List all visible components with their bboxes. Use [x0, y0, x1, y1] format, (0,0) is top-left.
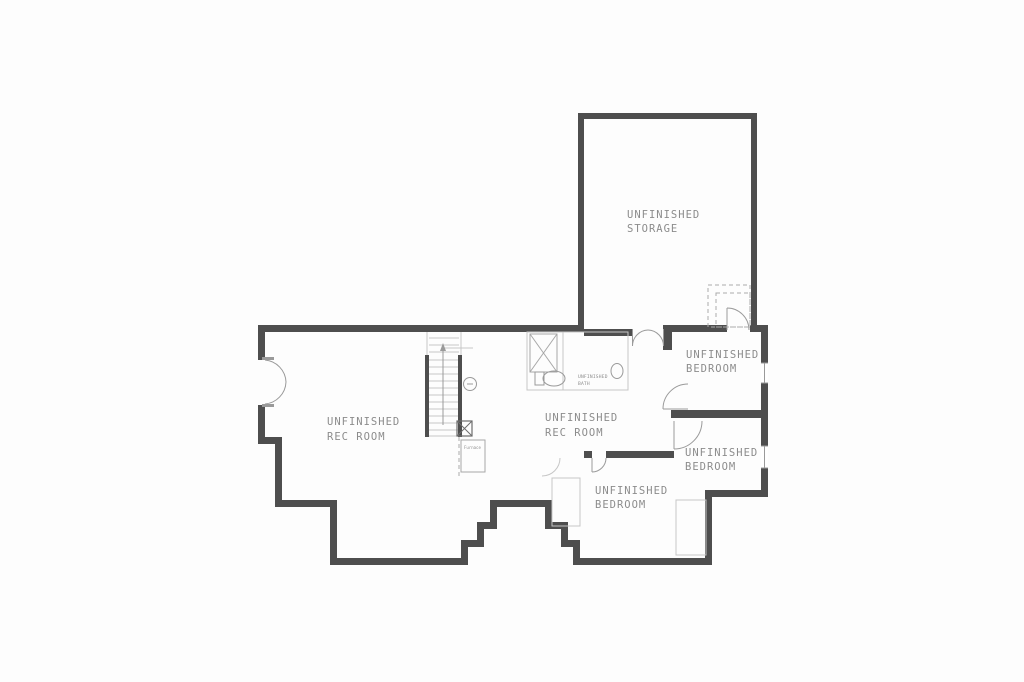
label-bath: UNFINISHED BATH [578, 374, 608, 387]
storage-top-wall [578, 113, 757, 119]
bedroom3-top-wall-stub [584, 451, 592, 458]
sink [611, 364, 623, 379]
storage-left-wall [578, 113, 584, 332]
svg-text:UNFINISHED: UNFINISHED [686, 349, 759, 361]
exterior-walls [258, 113, 768, 565]
shower [530, 334, 557, 372]
bedroom3-bottom-wall [573, 558, 712, 565]
svg-text:BEDROOM: BEDROOM [595, 499, 646, 511]
svg-text:REC ROOM: REC ROOM [545, 427, 604, 439]
svg-text:UNFINISHED: UNFINISHED [627, 209, 700, 221]
label-bedroom-right-top: UNFINISHED BEDROOM [686, 349, 759, 375]
svg-text:BEDROOM: BEDROOM [685, 461, 736, 473]
doors [262, 308, 749, 472]
left-wall-below-door [258, 405, 265, 444]
bump-plateau-wall [490, 500, 552, 507]
label-bedroom-bottom: UNFINISHED BEDROOM [595, 485, 668, 511]
storage-right-wall [751, 113, 757, 329]
floor-plan-drawing: Furnace UNFINISHED ST [0, 0, 1024, 682]
closet-door-arc [542, 458, 560, 476]
svg-text:UNFINISHED: UNFINISHED [578, 374, 608, 380]
right-wall-upper [761, 325, 768, 363]
svg-text:UNFINISHED: UNFINISHED [545, 412, 618, 424]
furnace: Furnace [461, 440, 485, 472]
bedroom2-bottom-wall [707, 490, 768, 497]
door-bedroom1 [663, 384, 688, 409]
svg-text:REC ROOM: REC ROOM [327, 431, 386, 443]
svg-text:BATH: BATH [578, 381, 590, 387]
door-bedroom3 [592, 458, 606, 472]
label-rec-room-left: UNFINISHED REC ROOM [327, 416, 400, 443]
svg-text:UNFINISHED: UNFINISHED [685, 447, 758, 459]
dashed-stair-landing [708, 285, 750, 327]
floor-drain [464, 378, 477, 391]
left-wall-above-door [258, 325, 265, 360]
furnace-label: Furnace [464, 445, 481, 450]
svg-text:UNFINISHED: UNFINISHED [595, 485, 668, 497]
double-door-storage [633, 329, 664, 346]
left-step-vertical-wall [275, 437, 282, 507]
door-bedroom2 [674, 421, 702, 449]
bedroom3-top-wall [606, 451, 674, 458]
label-bedroom-right-bottom: UNFINISHED BEDROOM [685, 447, 758, 473]
bedroom1-bedroom2-wall [671, 410, 766, 418]
room-labels: UNFINISHED STORAGE UNFINISHED BEDROOM UN… [327, 209, 759, 511]
label-rec-room-center: UNFINISHED REC ROOM [545, 412, 618, 439]
closet-bedroom3-left [552, 478, 580, 526]
svg-text:BEDROOM: BEDROOM [686, 363, 737, 375]
french-door [262, 357, 286, 407]
window-bedroom1 [761, 363, 768, 383]
recroom-bottom-wall [330, 558, 468, 565]
svg-text:UNFINISHED: UNFINISHED [327, 416, 400, 428]
label-storage: UNFINISHED STORAGE [627, 209, 700, 235]
closet-bedroom3-right [676, 500, 706, 555]
recroom-left-lower-wall [330, 500, 337, 565]
main-top-wall [258, 325, 584, 332]
window-bedroom2 [761, 446, 768, 468]
floor-plan-canvas: Furnace UNFINISHED ST [0, 0, 1024, 682]
stair-stringer-left [425, 355, 429, 437]
bedroom1-left-stub [663, 325, 672, 350]
svg-text:STORAGE: STORAGE [627, 223, 678, 235]
toilet [535, 371, 565, 386]
left-step-bottom-wall [275, 500, 337, 507]
bedroom1-top-wall [664, 325, 727, 332]
